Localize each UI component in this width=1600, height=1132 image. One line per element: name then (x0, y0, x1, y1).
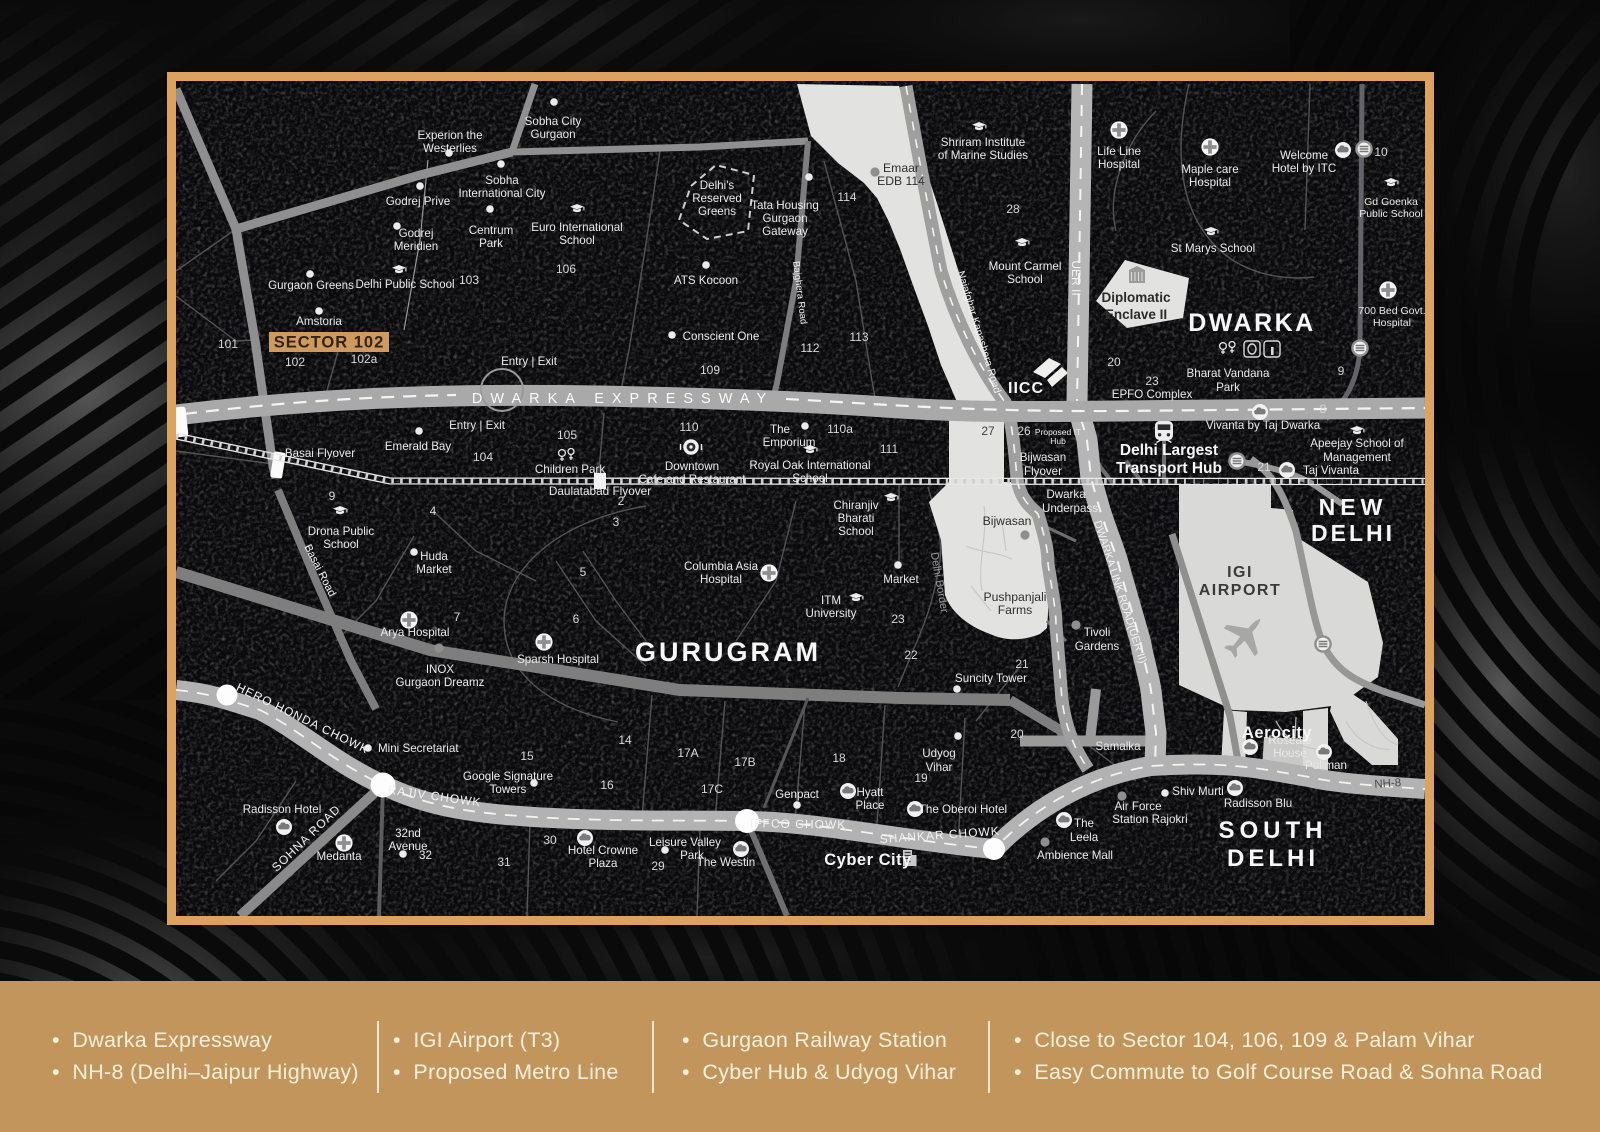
svg-text:15: 15 (520, 749, 534, 763)
svg-text:Farms: Farms (998, 603, 1033, 617)
svg-text:House: House (1273, 747, 1307, 760)
svg-text:110: 110 (679, 420, 698, 434)
svg-text:Life Line: Life Line (1097, 145, 1141, 158)
svg-text:Management: Management (1323, 451, 1391, 464)
svg-text:Market: Market (883, 573, 919, 586)
svg-text:The: The (770, 423, 790, 436)
svg-text:Emerald Bay: Emerald Bay (385, 440, 452, 453)
svg-text:School: School (323, 538, 358, 551)
svg-text:10: 10 (1374, 145, 1388, 159)
svg-text:ITM: ITM (821, 594, 841, 607)
svg-text:Underpass: Underpass (1042, 502, 1098, 515)
svg-text:14: 14 (618, 733, 632, 747)
svg-text:Vivanta by Taj Dwarka: Vivanta by Taj Dwarka (1206, 419, 1321, 432)
svg-text:Welcome: Welcome (1280, 149, 1328, 162)
svg-text:Shriram Institute: Shriram Institute (941, 136, 1025, 149)
svg-text:School: School (1007, 273, 1042, 286)
svg-text:9: 9 (329, 489, 336, 503)
svg-text:Apeejay School of: Apeejay School of (1310, 437, 1404, 450)
svg-text:Station Rajokri: Station Rajokri (1112, 813, 1187, 826)
svg-text:Ambience Mall: Ambience Mall (1037, 849, 1113, 862)
svg-text:17B: 17B (734, 755, 755, 769)
svg-text:Westerlies: Westerlies (423, 142, 477, 155)
svg-text:University: University (806, 607, 857, 620)
svg-text:Bharat Vandana: Bharat Vandana (1187, 367, 1270, 380)
svg-text:Google Signature: Google Signature (463, 770, 553, 783)
svg-text:20: 20 (1010, 727, 1024, 741)
svg-text:DWARKA: DWARKA (1188, 309, 1316, 337)
svg-text:2: 2 (618, 494, 625, 508)
svg-text:Delhi Largest: Delhi Largest (1120, 442, 1218, 459)
svg-text:5: 5 (580, 565, 587, 579)
svg-text:27: 27 (981, 424, 995, 438)
svg-text:18: 18 (832, 751, 846, 765)
svg-text:Park: Park (479, 237, 503, 250)
svg-text:Children Park: Children Park (535, 463, 605, 476)
svg-text:4: 4 (430, 504, 437, 518)
svg-text:Emporium: Emporium (763, 436, 816, 449)
svg-text:of Marine Studies: of Marine Studies (938, 149, 1028, 162)
svg-text:Samalka: Samalka (1095, 740, 1141, 753)
svg-text:Hotel by ITC: Hotel by ITC (1272, 162, 1336, 175)
svg-text:Chiranjiv: Chiranjiv (833, 499, 878, 512)
svg-text:Greens: Greens (698, 205, 736, 218)
svg-text:17C: 17C (701, 782, 723, 796)
svg-text:700 Bed Govt.: 700 Bed Govt. (1358, 305, 1425, 317)
svg-text:103: 103 (459, 273, 479, 287)
svg-text:32nd: 32nd (395, 827, 421, 840)
svg-text:GURUGRAM: GURUGRAM (635, 637, 821, 667)
svg-text:3: 3 (613, 515, 620, 529)
svg-text:Sobha: Sobha (485, 174, 519, 187)
svg-text:Hyatt: Hyatt (856, 786, 884, 799)
svg-text:6: 6 (573, 612, 580, 626)
svg-text:113: 113 (849, 330, 868, 344)
svg-text:105: 105 (557, 428, 577, 442)
svg-text:Royal Oak International: Royal Oak International (749, 459, 870, 472)
svg-text:EDB 114: EDB 114 (877, 174, 925, 188)
svg-text:The Oberoi Hotel: The Oberoi Hotel (919, 803, 1007, 816)
svg-text:DELHI: DELHI (1227, 845, 1319, 872)
svg-text:SOUTH: SOUTH (1219, 817, 1328, 844)
svg-text:Hospital: Hospital (1098, 158, 1140, 171)
svg-text:Sobha City: Sobha City (525, 115, 582, 128)
svg-text:St Marys School: St Marys School (1171, 242, 1255, 255)
svg-text:Pullman: Pullman (1305, 759, 1347, 772)
svg-text:Gurgaon Dreamz: Gurgaon Dreamz (396, 676, 485, 689)
svg-text:Public School: Public School (1359, 208, 1423, 220)
svg-text:Hospital: Hospital (700, 573, 742, 586)
svg-text:Air Force: Air Force (1114, 800, 1161, 813)
svg-text:Delhi Public School: Delhi Public School (355, 279, 454, 291)
svg-text:Experion the: Experion the (417, 129, 482, 142)
svg-text:Cyber City: Cyber City (824, 851, 912, 869)
svg-text:Gateway: Gateway (762, 225, 808, 238)
svg-text:Flyover: Flyover (1024, 465, 1062, 478)
svg-text:Suncity Tower: Suncity Tower (955, 672, 1027, 685)
svg-text:Downtown: Downtown (665, 460, 719, 473)
svg-text:Pushpanjali: Pushpanjali (983, 590, 1046, 604)
svg-text:Leisure Valley: Leisure Valley (649, 836, 721, 849)
svg-text:Centrum: Centrum (469, 224, 513, 237)
svg-text:The: The (1074, 817, 1094, 830)
svg-text:Cafe and Restaurant: Cafe and Restaurant (639, 473, 747, 486)
svg-text:Radisson Hotel: Radisson Hotel (243, 803, 322, 816)
svg-text:32: 32 (419, 849, 432, 862)
svg-text:Aerocity: Aerocity (1242, 724, 1312, 742)
svg-text:School: School (792, 472, 827, 485)
svg-text:Meridien: Meridien (394, 240, 438, 253)
svg-text:Tata Housing: Tata Housing (751, 199, 819, 212)
svg-text:Hub: Hub (1050, 436, 1066, 446)
svg-text:Mini Secretariat: Mini Secretariat (378, 742, 459, 755)
svg-text:20: 20 (1107, 355, 1121, 369)
svg-text:Shiv Murti: Shiv Murti (1172, 785, 1224, 798)
svg-text:Tivoli: Tivoli (1084, 626, 1111, 639)
svg-text:Park: Park (1216, 381, 1240, 394)
svg-text:Plaza: Plaza (588, 857, 618, 870)
svg-text:31: 31 (497, 855, 511, 869)
svg-text:INOX: INOX (426, 663, 455, 676)
svg-text:Hotel Crowne: Hotel Crowne (568, 844, 638, 857)
svg-text:Godrej Prive: Godrej Prive (386, 195, 450, 208)
svg-text:7: 7 (454, 610, 461, 624)
svg-text:International City: International City (459, 187, 546, 200)
svg-text:The Westin: The Westin (697, 856, 755, 869)
svg-text:106: 106 (556, 262, 576, 276)
svg-text:Gd Goenka: Gd Goenka (1364, 196, 1418, 208)
svg-text:Gurgaon: Gurgaon (530, 128, 575, 141)
svg-text:112: 112 (800, 341, 819, 355)
svg-text:NH-8: NH-8 (1374, 777, 1402, 791)
svg-text:Diplomatic: Diplomatic (1101, 290, 1171, 305)
svg-text:114: 114 (837, 190, 856, 204)
svg-text:26: 26 (1017, 424, 1031, 438)
svg-text:EPFO Complex: EPFO Complex (1112, 388, 1193, 401)
svg-text:22: 22 (904, 648, 918, 662)
svg-text:Transport Hub: Transport Hub (1116, 460, 1222, 477)
svg-text:Hospital: Hospital (1189, 176, 1231, 189)
svg-text:Godrej: Godrej (399, 227, 434, 240)
svg-text:School: School (559, 234, 594, 247)
svg-text:110a: 110a (827, 422, 853, 436)
svg-text:Vihar: Vihar (926, 761, 953, 774)
svg-text:104: 104 (473, 450, 493, 464)
svg-text:Place: Place (855, 799, 884, 812)
svg-text:Leela: Leela (1070, 831, 1099, 844)
svg-text:IFFCO CHOWK: IFFCO CHOWK (750, 816, 847, 832)
svg-text:17A: 17A (677, 746, 698, 760)
svg-text:Drona Public: Drona Public (308, 525, 375, 538)
svg-text:29: 29 (651, 859, 665, 873)
svg-text:102a: 102a (351, 352, 378, 366)
svg-text:Enclave II: Enclave II (1105, 307, 1167, 322)
svg-text:IICC: IICC (1008, 380, 1044, 397)
svg-text:19: 19 (914, 771, 928, 785)
svg-text:Bijwasan: Bijwasan (1020, 451, 1066, 464)
svg-text:9: 9 (1338, 364, 1345, 378)
svg-text:Bharati: Bharati (838, 512, 875, 525)
svg-text:AIRPORT: AIRPORT (1199, 582, 1282, 599)
svg-text:Entry | Exit: Entry | Exit (501, 355, 558, 368)
svg-text:111: 111 (880, 442, 899, 456)
svg-text:Conscient One: Conscient One (683, 330, 760, 343)
svg-text:28: 28 (1006, 202, 1020, 216)
svg-text:Towers: Towers (490, 783, 527, 796)
svg-text:16: 16 (600, 778, 614, 792)
svg-text:30: 30 (543, 833, 557, 847)
svg-text:Bijwasan: Bijwasan (983, 514, 1032, 528)
svg-text:Basai Flyover: Basai Flyover (285, 447, 355, 460)
svg-text:Genpact: Genpact (775, 788, 820, 801)
svg-text:Arya Hospital: Arya Hospital (381, 626, 450, 639)
svg-text:Amstoria: Amstoria (296, 315, 342, 328)
svg-text:Reserved: Reserved (692, 192, 742, 205)
svg-text:Gardens: Gardens (1075, 640, 1120, 653)
svg-text:Gurgaon: Gurgaon (762, 212, 807, 225)
svg-text:21: 21 (1257, 460, 1271, 474)
svg-text:Taj Vivanta: Taj Vivanta (1303, 465, 1360, 477)
svg-text:Mount Carmel: Mount Carmel (989, 260, 1062, 273)
svg-text:School: School (838, 525, 873, 538)
svg-text:21: 21 (1015, 657, 1029, 671)
svg-text:102: 102 (285, 355, 305, 369)
svg-text:23: 23 (891, 612, 905, 626)
svg-text:Sparsh Hospital: Sparsh Hospital (517, 653, 599, 666)
svg-text:101: 101 (218, 337, 238, 351)
svg-text:NEW: NEW (1319, 494, 1388, 520)
svg-text:23: 23 (1145, 374, 1159, 388)
svg-text:8: 8 (1320, 402, 1327, 416)
svg-text:Market: Market (416, 563, 452, 576)
svg-text:Entry | Exit: Entry | Exit (449, 419, 506, 432)
svg-text:Euro International: Euro International (531, 221, 623, 234)
svg-text:ATS Kocoon: ATS Kocoon (674, 274, 738, 287)
svg-text:109: 109 (700, 363, 720, 377)
svg-text:Huda: Huda (420, 550, 448, 563)
svg-text:Gurgaon Greens: Gurgaon Greens (268, 280, 354, 292)
svg-text:Hospital: Hospital (1373, 317, 1411, 329)
svg-text:Emaar: Emaar (883, 161, 919, 175)
svg-text:Daulatabad Flyover: Daulatabad Flyover (549, 484, 651, 498)
svg-text:DWARKA EXPRESSWAY: DWARKA EXPRESSWAY (472, 391, 774, 407)
svg-text:Radisson Blu: Radisson Blu (1224, 797, 1292, 810)
svg-text:UER II: UER II (1069, 260, 1083, 295)
svg-text:DELHI: DELHI (1311, 520, 1395, 546)
svg-text:Delhi's: Delhi's (700, 179, 735, 192)
svg-text:Maple care: Maple care (1181, 163, 1238, 176)
svg-text:SECTOR 102: SECTOR 102 (274, 334, 385, 352)
svg-text:Medanta: Medanta (316, 850, 362, 863)
svg-text:IGI: IGI (1227, 564, 1253, 581)
svg-text:Columbia Asia: Columbia Asia (684, 560, 759, 573)
svg-text:Dwarka: Dwarka (1046, 488, 1086, 501)
svg-text:Udyog: Udyog (922, 747, 956, 760)
